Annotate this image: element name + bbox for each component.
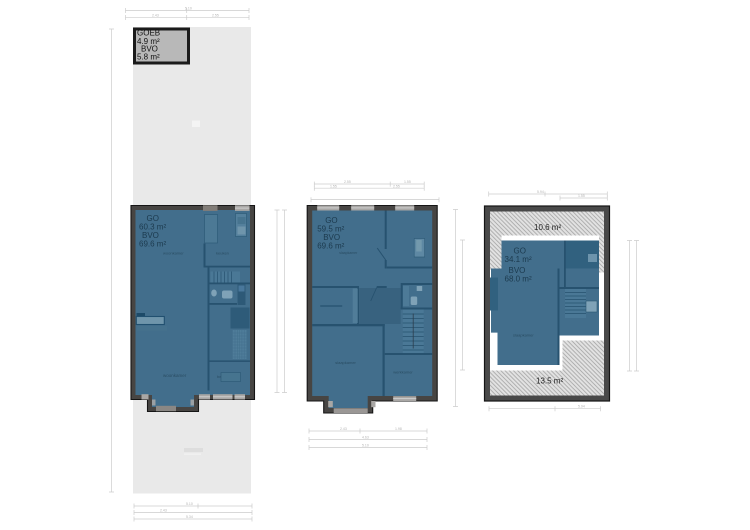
svg-text:2.43: 2.43: [160, 509, 167, 513]
svg-text:2.43: 2.43: [340, 427, 347, 431]
svg-text:4.63: 4.63: [362, 436, 369, 440]
svg-text:2.55: 2.55: [393, 184, 400, 188]
svg-text:slaapkamer: slaapkamer: [335, 360, 356, 365]
svg-text:woonkamer: woonkamer: [163, 251, 184, 256]
svg-text:2.43: 2.43: [152, 13, 159, 17]
svg-text:woonkamer: woonkamer: [163, 373, 187, 378]
svg-text:2.55: 2.55: [212, 13, 219, 17]
svg-text:2.55: 2.55: [344, 180, 351, 184]
svg-text:5.94: 5.94: [537, 190, 544, 194]
svg-text:5.34: 5.34: [186, 515, 193, 519]
svg-text:5.8 m²: 5.8 m²: [137, 53, 160, 62]
svg-text:5.10: 5.10: [185, 6, 192, 10]
svg-text:slaapkamer: slaapkamer: [339, 251, 358, 255]
svg-text:34.1 m²: 34.1 m²: [505, 255, 532, 264]
svg-text:1.55: 1.55: [404, 180, 411, 184]
svg-text:keuken: keuken: [216, 251, 229, 256]
svg-text:5.10: 5.10: [362, 444, 369, 448]
svg-text:slaapkamer: slaapkamer: [513, 333, 534, 338]
svg-text:10.6 m²: 10.6 m²: [534, 223, 561, 232]
svg-text:werkkamer: werkkamer: [393, 370, 413, 375]
svg-text:69.6 m²: 69.6 m²: [317, 242, 344, 251]
svg-text:1.55: 1.55: [578, 194, 585, 198]
svg-text:69.6 m²: 69.6 m²: [139, 240, 166, 249]
svg-text:13.5 m²: 13.5 m²: [536, 377, 563, 386]
svg-text:1.98: 1.98: [395, 427, 402, 431]
svg-text:5.94: 5.94: [578, 405, 585, 409]
svg-text:5.10: 5.10: [186, 502, 193, 506]
svg-text:68.0 m²: 68.0 m²: [505, 275, 532, 284]
svg-text:1.55: 1.55: [330, 184, 337, 188]
